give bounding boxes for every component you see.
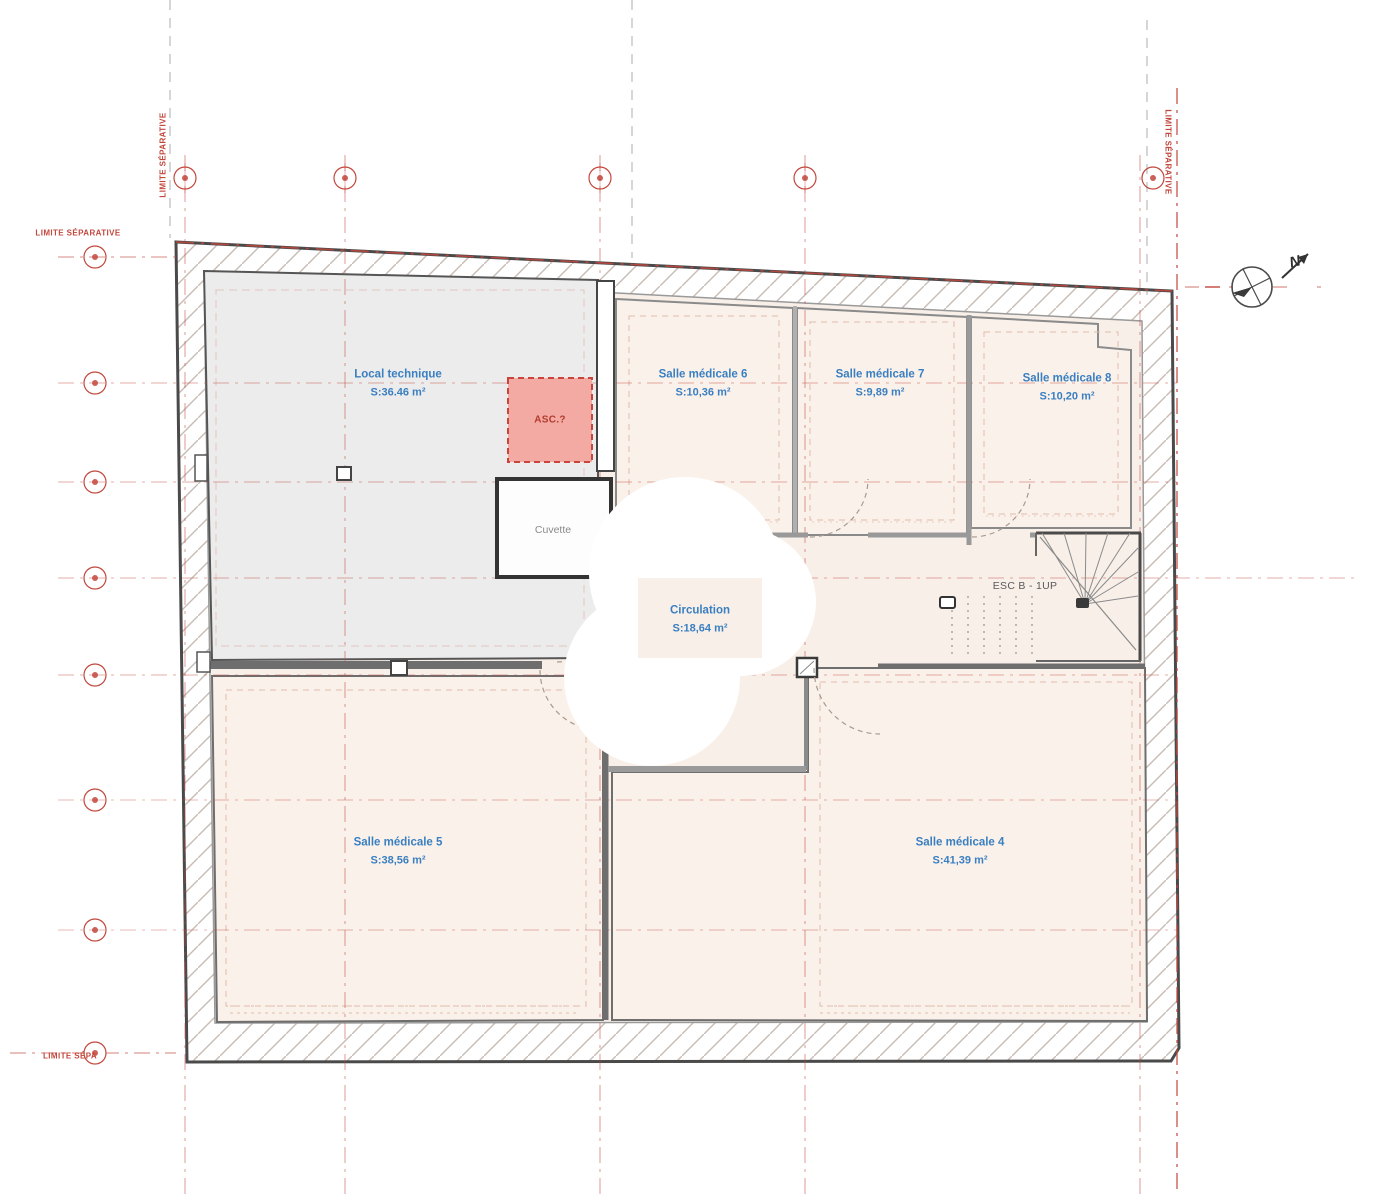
grid-markers-left <box>84 246 106 1064</box>
grid-markers-top <box>174 163 1164 193</box>
room-local-technique <box>204 271 598 660</box>
room-salle-7 <box>797 308 967 535</box>
room-salle-8 <box>971 317 1131 528</box>
elevator-box <box>508 378 592 462</box>
circulation-patch <box>638 578 762 658</box>
floor-plan-drawing <box>0 0 1388 1200</box>
room-salle-5 <box>212 676 603 1022</box>
floor-plan-page: Local technique S:36.46 m² Salle médical… <box>0 0 1388 1200</box>
compass-rose <box>1205 254 1308 307</box>
